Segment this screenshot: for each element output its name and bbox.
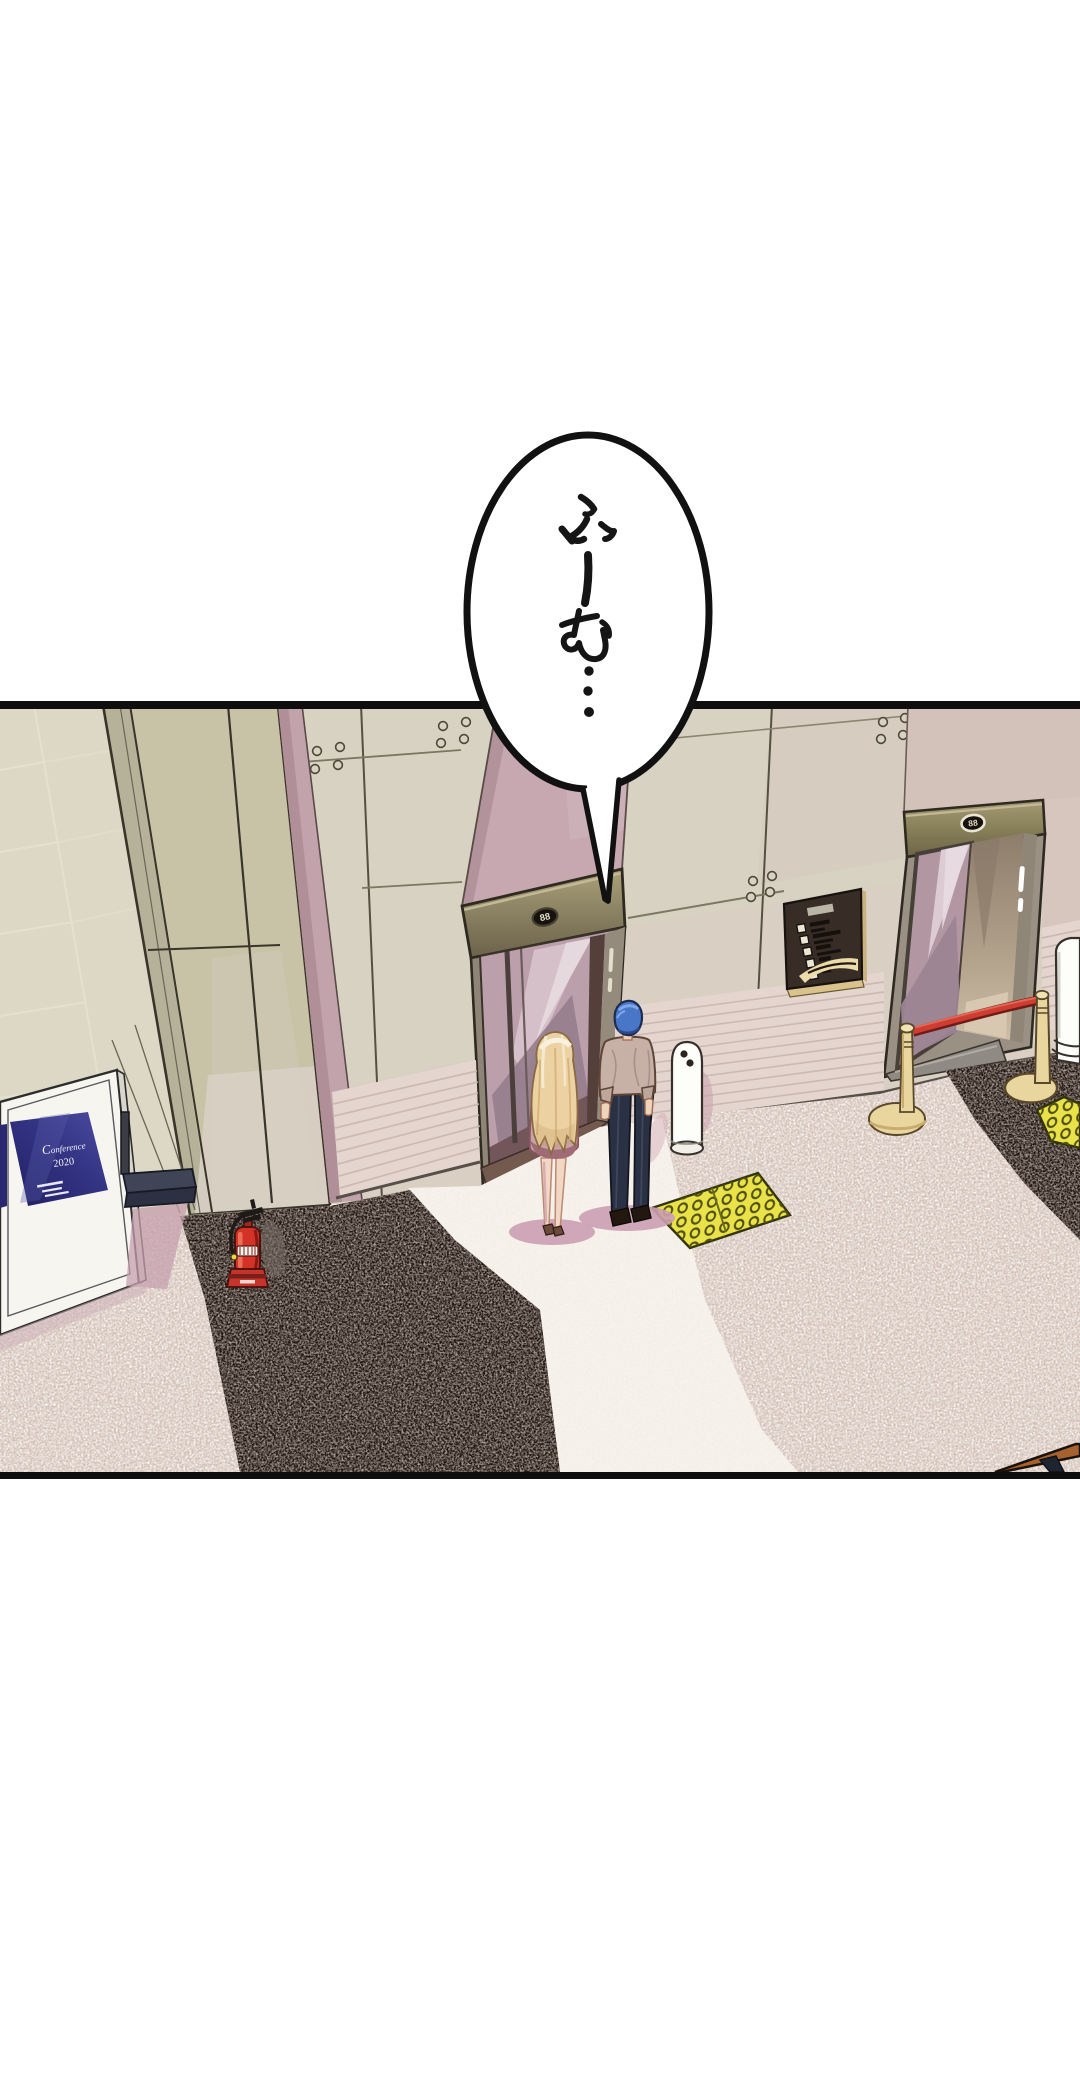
svg-text:88: 88 xyxy=(539,911,552,924)
svg-text:88: 88 xyxy=(968,817,979,828)
